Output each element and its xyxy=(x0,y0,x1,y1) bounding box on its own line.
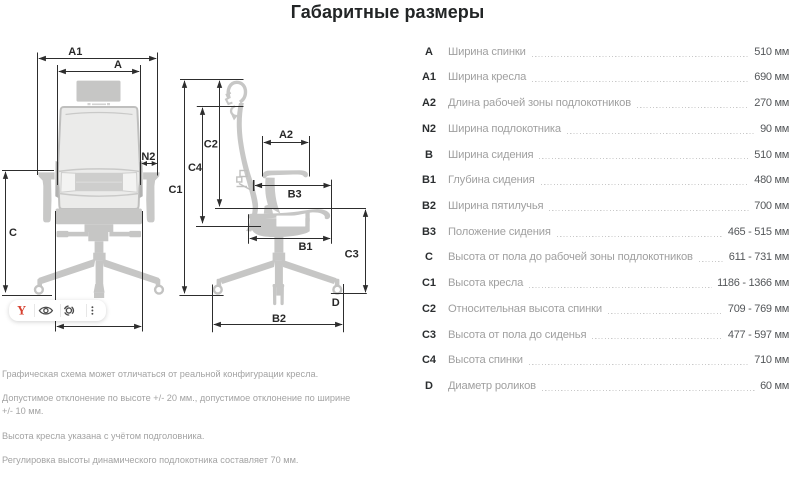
svg-text:A1: A1 xyxy=(68,46,82,58)
svg-text:C4: C4 xyxy=(188,162,203,174)
svg-text:C2: C2 xyxy=(204,139,218,151)
svg-text:C3: C3 xyxy=(345,249,359,261)
svg-text:C1: C1 xyxy=(168,184,182,196)
svg-text:D: D xyxy=(332,297,340,309)
svg-text:B1: B1 xyxy=(298,241,312,253)
svg-text:C: C xyxy=(9,227,17,239)
svg-text:B2: B2 xyxy=(272,313,286,325)
svg-text:A: A xyxy=(114,59,122,71)
svg-text:B3: B3 xyxy=(288,189,302,201)
svg-text:A2: A2 xyxy=(279,129,293,141)
svg-text:N2: N2 xyxy=(141,151,155,163)
svg-text:Y: Y xyxy=(17,303,26,317)
